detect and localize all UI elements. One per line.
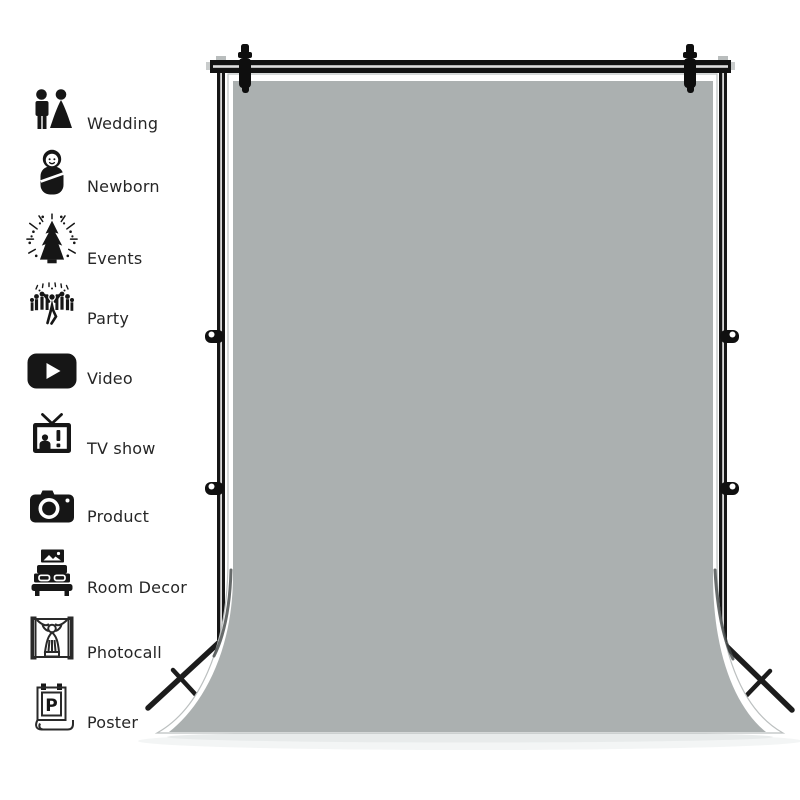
category-label: Room Decor	[87, 579, 187, 599]
category-label: Video	[87, 370, 133, 390]
newborn-baby-icon	[26, 148, 78, 198]
crossbar	[206, 60, 735, 73]
sidebar-item-video: Video	[26, 352, 133, 390]
category-label: Party	[87, 310, 129, 330]
camera-icon	[26, 486, 78, 528]
sidebar-item-product: Product	[26, 486, 149, 528]
sidebar-item-photocall: Photocall	[26, 614, 162, 664]
sidebar-item-tv-show: TV show	[26, 412, 156, 460]
sidebar-item-events: Events	[26, 212, 142, 270]
photocall-stage-icon	[26, 614, 78, 664]
sidebar-item-wedding: Wedding	[26, 87, 158, 135]
category-label: Wedding	[87, 115, 158, 135]
poster-icon: P	[26, 682, 78, 734]
svg-text:P: P	[45, 696, 57, 716]
category-label: Events	[87, 250, 142, 270]
tv-screen-icon	[26, 412, 78, 460]
category-sidebar: Wedding Newborn	[0, 0, 200, 800]
category-label: Newborn	[87, 178, 160, 198]
grey-backdrop	[157, 74, 783, 733]
category-label: Photocall	[87, 644, 162, 664]
sidebar-item-party: Party	[26, 282, 129, 330]
fireworks-tree-icon	[26, 212, 78, 270]
party-crowd-icon	[26, 282, 78, 330]
sidebar-item-room-decor: Room Decor	[26, 549, 187, 599]
category-label: Poster	[87, 714, 138, 734]
bedroom-icon	[26, 549, 78, 599]
category-label: TV show	[87, 440, 156, 460]
sidebar-item-newborn: Newborn	[26, 148, 160, 198]
category-label: Product	[87, 508, 149, 528]
video-play-icon	[26, 352, 78, 390]
product-image: Wedding Newborn	[0, 0, 800, 800]
wedding-couple-icon	[26, 87, 78, 135]
sidebar-item-poster: P Poster	[26, 682, 138, 734]
